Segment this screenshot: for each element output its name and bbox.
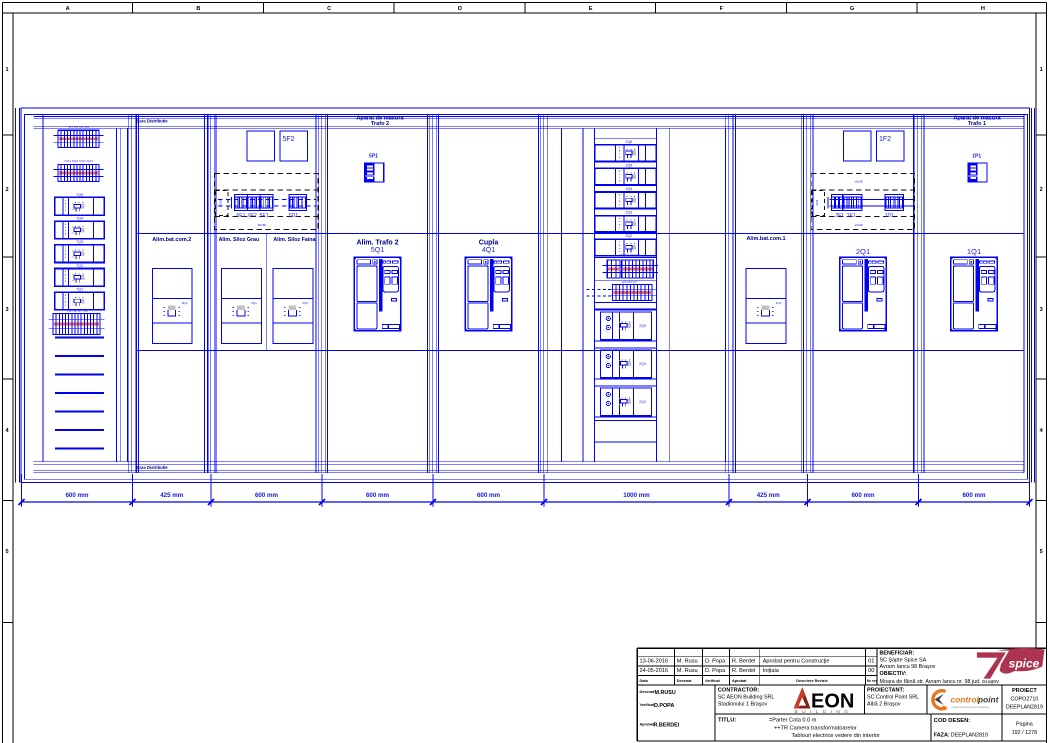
svg-text:2F1 ,1E1: 2F1 ,1E1 (835, 213, 856, 219)
svg-text:Nr rev: Nr rev (867, 679, 879, 683)
svg-text:2: 2 (1040, 187, 1043, 193)
svg-text:Alim. Siloz Faina: Alim. Siloz Faina (273, 237, 315, 243)
svg-text:6E1 ,6F2 ,5E1: 6E1 ,6F2 ,5E1 (237, 213, 269, 219)
svg-text:Data: Data (640, 679, 649, 683)
svg-text:2Q6: 2Q6 (626, 140, 633, 144)
svg-text:Bara Distributie: Bara Distributie (136, 118, 168, 123)
svg-text:M. Rusu: M. Rusu (677, 668, 698, 674)
svg-text:5F2: 5F2 (283, 136, 295, 143)
svg-text:Alim.bat.com.1: Alim.bat.com.1 (746, 236, 785, 242)
svg-text:192 / 1278: 192 / 1278 (1012, 730, 1037, 736)
svg-text:D. Popa: D. Popa (705, 668, 726, 674)
svg-text:FAZA:: FAZA: (934, 733, 950, 739)
svg-text:Verificat: Verificat (640, 703, 656, 707)
svg-text:Aprobat: Aprobat (732, 679, 747, 683)
svg-text:80x80: 80x80 (258, 223, 267, 227)
svg-text:R.BERDEI: R.BERDEI (654, 722, 680, 728)
svg-text:1P1: 1P1 (972, 154, 981, 160)
svg-text:7Q4: 7Q4 (76, 217, 83, 221)
svg-text:2X5 2X6 2X7: 2X5 2X6 2X7 (622, 280, 638, 284)
svg-text:PROIECTANT:: PROIECTANT: (867, 688, 904, 694)
svg-text:Trafo 1: Trafo 1 (968, 121, 986, 127)
svg-text:++TR Camera transformatoarelor: ++TR Camera transformatoarelor (774, 725, 857, 731)
svg-text:F: F (720, 6, 724, 12)
svg-text:1000 mm: 1000 mm (623, 492, 650, 499)
svg-text:Descriere Revizie: Descriere Revizie (796, 679, 827, 683)
svg-text:OBIECTIV:: OBIECTIV: (880, 671, 907, 677)
svg-text:01: 01 (868, 658, 874, 664)
svg-text:R. Berdel: R. Berdel (732, 658, 755, 664)
svg-text:2Q5: 2Q5 (639, 324, 646, 328)
svg-text:5P1: 5P1 (369, 154, 378, 160)
svg-text:C: C (327, 6, 331, 12)
svg-text:CONTRACTOR:: CONTRACTOR: (718, 688, 760, 694)
svg-text:Verificat: Verificat (705, 679, 721, 683)
svg-text:COD DESEN:: COD DESEN: (934, 718, 970, 724)
svg-text:5D1: 5D1 (289, 213, 298, 219)
svg-text:2Q2: 2Q2 (776, 301, 782, 305)
svg-text:Alim.bat.com.2: Alim.bat.com.2 (152, 237, 191, 243)
svg-text:5Q2: 5Q2 (302, 301, 308, 305)
svg-text:A: A (66, 6, 70, 12)
svg-text:Trafo 2: Trafo 2 (371, 121, 389, 127)
svg-text:5: 5 (5, 549, 8, 555)
svg-text:9Q9: 9Q9 (815, 199, 819, 205)
svg-text:3: 3 (5, 307, 8, 313)
svg-text:COPO2710: COPO2710 (1010, 697, 1038, 703)
svg-text:7Q3: 7Q3 (76, 240, 83, 244)
svg-text:Desenat: Desenat (640, 690, 656, 694)
svg-text:2Q1: 2Q1 (856, 247, 870, 256)
svg-text:=Parter Cota 0.0 m: =Parter Cota 0.0 m (769, 718, 817, 724)
svg-text:1F2: 1F2 (879, 136, 891, 143)
svg-text:R. Berdel: R. Berdel (732, 668, 755, 674)
svg-text:DEEPLAN2819: DEEPLAN2819 (951, 733, 988, 739)
svg-text:PROIECT: PROIECT (1012, 688, 1037, 694)
svg-text:Iniţiala: Iniţiala (763, 668, 780, 674)
svg-text:00: 00 (868, 668, 874, 674)
svg-text:13-06-2016: 13-06-2016 (640, 658, 669, 664)
svg-text:7Q2: 7Q2 (76, 264, 83, 268)
svg-text:6Q1: 6Q1 (251, 301, 257, 305)
svg-text:2: 2 (5, 187, 8, 193)
svg-text:600 mm: 600 mm (962, 492, 986, 499)
svg-text:Avram Iancu 98 Braşov: Avram Iancu 98 Braşov (880, 664, 936, 670)
svg-text:Cupla: Cupla (479, 239, 499, 246)
svg-text:2X1 2X2 2X3 2X4: 2X1 2X2 2X3 2X4 (619, 253, 640, 257)
svg-text:1: 1 (5, 67, 8, 73)
svg-text:point: point (977, 695, 1000, 705)
svg-text:control: control (951, 695, 980, 705)
svg-text:Bara Distributie: Bara Distributie (136, 465, 168, 470)
svg-text:SC Şapte Spice SA: SC Şapte Spice SA (880, 657, 927, 663)
svg-text:1D1: 1D1 (885, 213, 894, 219)
svg-text:SC AEON Building SRL: SC AEON Building SRL (718, 694, 775, 700)
svg-text:2Q4: 2Q4 (626, 187, 633, 191)
svg-text:3: 3 (1040, 307, 1043, 313)
svg-text:2Q5: 2Q5 (626, 163, 633, 167)
svg-text:E: E (589, 6, 593, 12)
svg-text:600 mm: 600 mm (477, 492, 501, 499)
svg-text:BUILDING: BUILDING (795, 709, 853, 715)
svg-text:7X5 7X6 7X7 7X8: 7X5 7X6 7X7 7X8 (67, 309, 88, 313)
svg-text:spice: spice (1009, 657, 1040, 671)
svg-text:1: 1 (1040, 67, 1043, 73)
svg-text:4Q1: 4Q1 (482, 247, 495, 254)
svg-text:DEEPLAN2819: DEEPLAN2819 (1006, 705, 1043, 711)
svg-text:7Q1: 7Q1 (76, 288, 83, 292)
svg-text:5Q1: 5Q1 (371, 247, 384, 254)
svg-text:9Q9: 9Q9 (219, 199, 223, 205)
svg-text:D. Popa: D. Popa (705, 658, 726, 664)
svg-text:Albă 2 Braşov: Albă 2 Braşov (867, 701, 901, 707)
svg-text:Stadionului 1 Braşov: Stadionului 1 Braşov (718, 701, 768, 707)
svg-text:TITLU:: TITLU: (718, 718, 736, 724)
svg-text:425 mm: 425 mm (160, 492, 184, 499)
svg-text:M. Rusu: M. Rusu (677, 658, 698, 664)
svg-text:Alim. Siloz Grau: Alim. Siloz Grau (219, 237, 260, 243)
svg-text:2Q3: 2Q3 (626, 211, 633, 215)
svg-text:engineering and consulting: engineering and consulting (952, 705, 989, 709)
svg-text:9Q2: 9Q2 (182, 301, 188, 305)
svg-text:600 mm: 600 mm (65, 492, 89, 499)
svg-text:7QA4 7QA4 7QA4 7QA4: 7QA4 7QA4 7QA4 7QA4 (64, 159, 93, 163)
svg-text:H: H (981, 6, 985, 12)
svg-text:Tablouri electrice vedere din: Tablouri electrice vedere din interior (792, 733, 880, 739)
svg-text:B: B (196, 6, 200, 12)
svg-text:G: G (850, 6, 854, 12)
svg-text:1Q1: 1Q1 (967, 247, 981, 256)
svg-text:Pagina: Pagina (1016, 722, 1033, 728)
svg-text:SC Control Point SRL: SC Control Point SRL (867, 694, 919, 700)
svg-text:M.RUSU: M.RUSU (655, 690, 676, 696)
svg-text:2Q4: 2Q4 (639, 362, 646, 366)
svg-text:Alim. Trafo 2: Alim. Trafo 2 (356, 239, 398, 246)
svg-text:Aprobat pentru Construcţie: Aprobat pentru Construcţie (763, 658, 830, 664)
svg-text:24-05-2016: 24-05-2016 (640, 668, 669, 674)
svg-text:D: D (458, 6, 462, 12)
svg-text:BENEFICIAR:: BENEFICIAR: (880, 651, 915, 657)
svg-text:10x38: 10x38 (854, 179, 863, 183)
svg-text:7Q5: 7Q5 (76, 193, 83, 197)
svg-text:D.POPA: D.POPA (654, 703, 674, 709)
svg-text:Aprobat: Aprobat (640, 723, 655, 727)
svg-text:425 mm: 425 mm (757, 492, 781, 499)
svg-text:600 mm: 600 mm (366, 492, 390, 499)
svg-text:7X1 7X2 7X3 7X4: 7X1 7X2 7X3 7X4 (68, 126, 89, 130)
svg-text:600 mm: 600 mm (255, 492, 279, 499)
svg-text:2Q3: 2Q3 (639, 400, 646, 404)
svg-text:2Q2: 2Q2 (626, 234, 633, 238)
svg-text:Desenat: Desenat (677, 679, 693, 683)
svg-text:5: 5 (1040, 549, 1043, 555)
svg-text:10x38: 10x38 (854, 223, 863, 227)
svg-text:600 mm: 600 mm (851, 492, 875, 499)
